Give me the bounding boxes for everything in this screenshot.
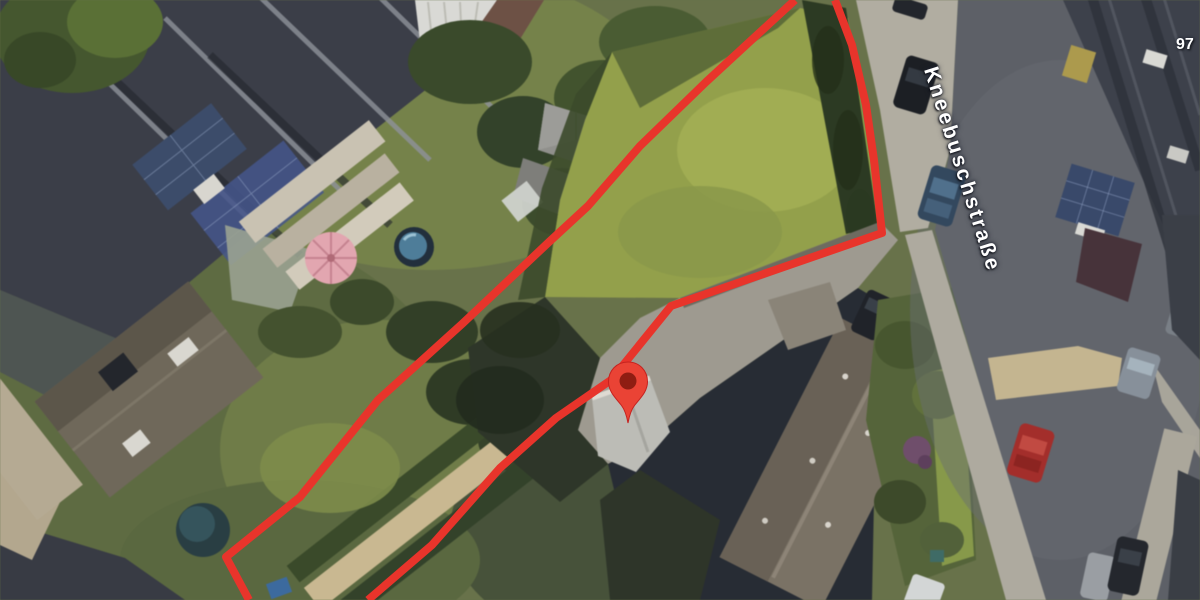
house-number-label: 97 xyxy=(1176,36,1194,54)
location-pin-icon[interactable] xyxy=(606,360,650,426)
pin-body xyxy=(609,362,648,423)
pin-inner-dot xyxy=(620,373,637,390)
satellite-imagery xyxy=(0,0,1200,600)
map-canvas[interactable]: Kneebuschstraße 97 xyxy=(0,0,1200,600)
